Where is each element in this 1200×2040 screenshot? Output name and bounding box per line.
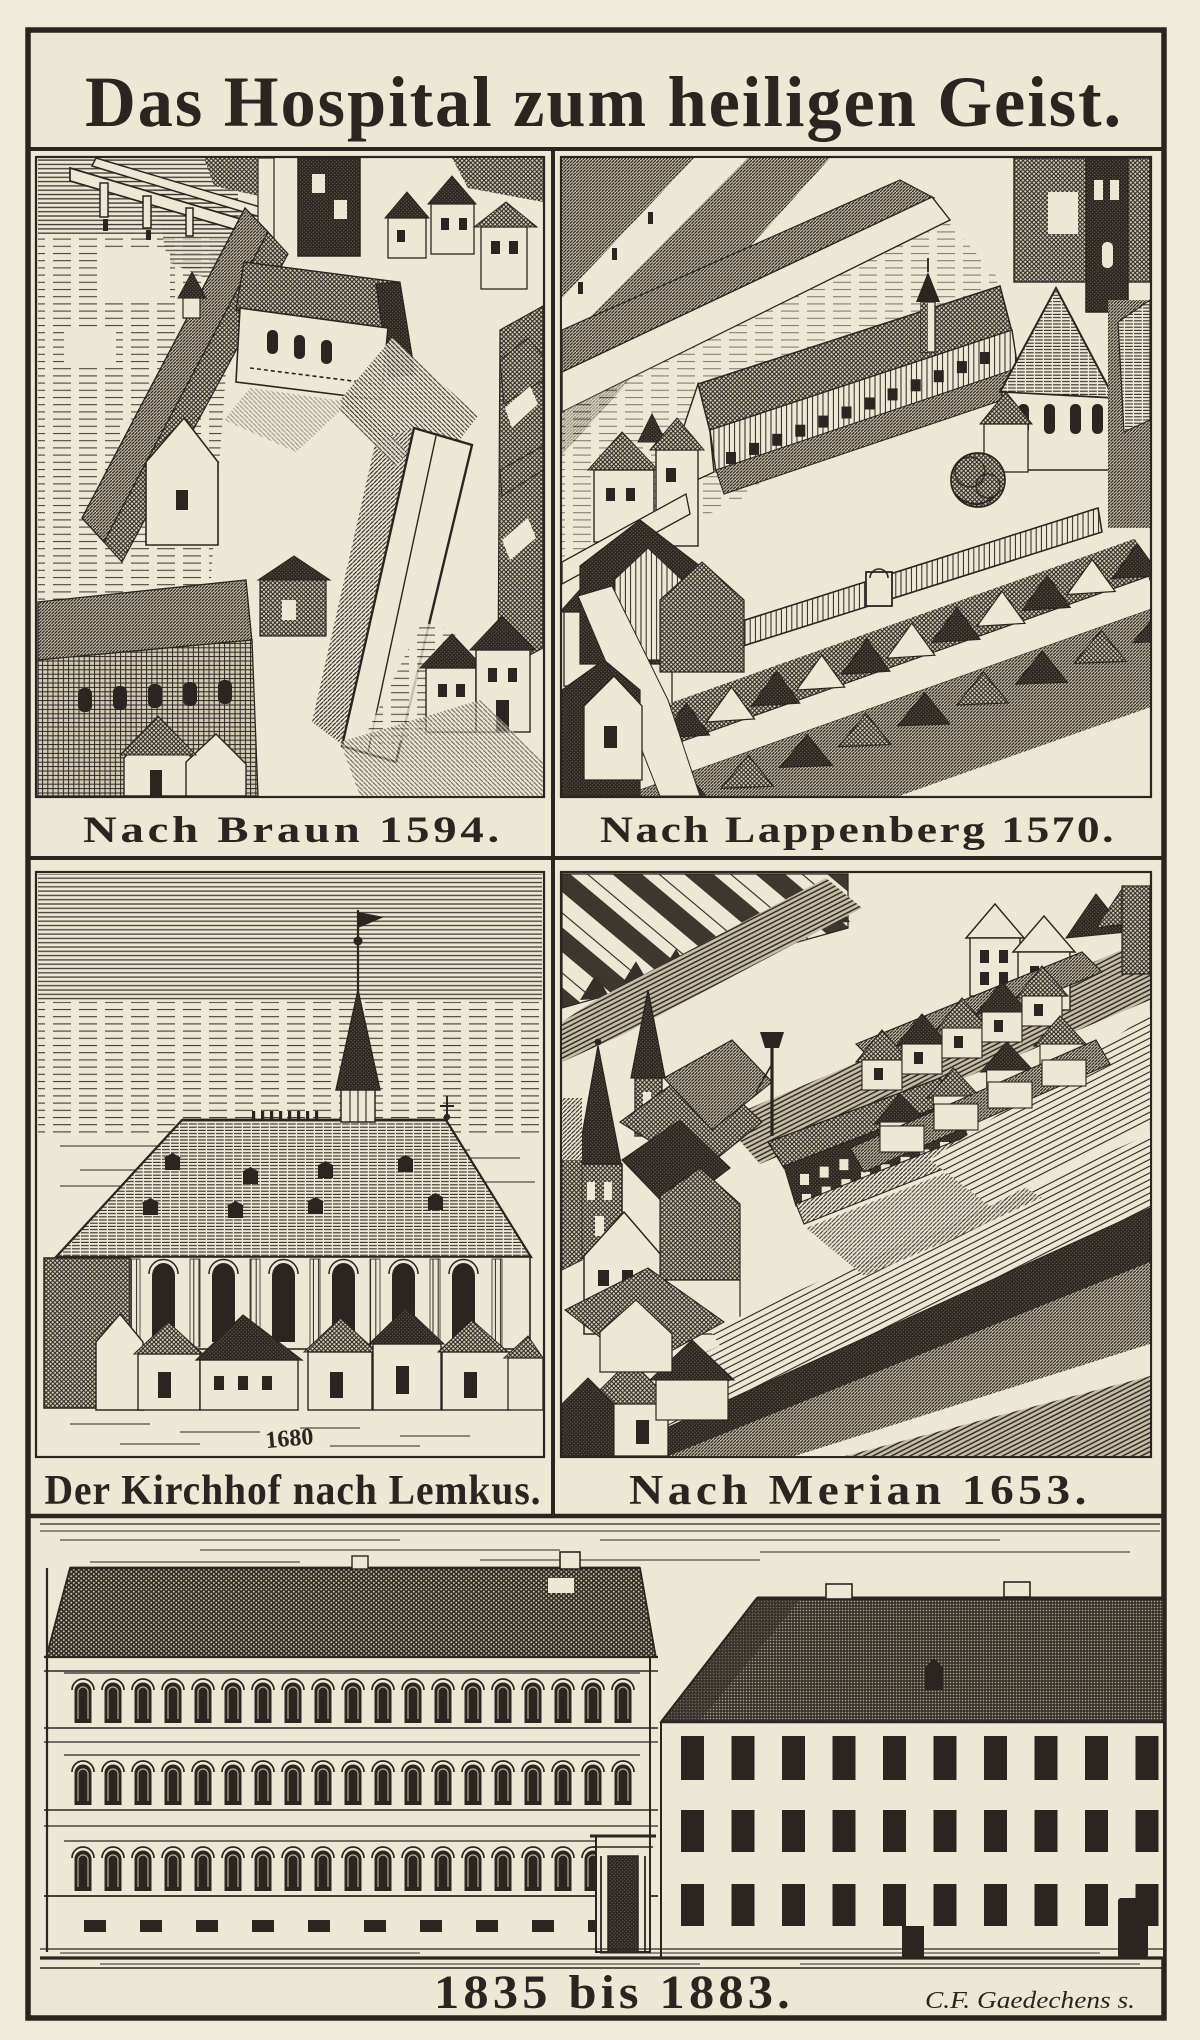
svg-text:Das Hospital zum heiligen Geis: Das Hospital zum heiligen Geist. — [85, 62, 1123, 142]
svg-text:Nach Braun 1594.: Nach Braun 1594. — [83, 810, 503, 851]
svg-text:Nach Merian 1653.: Nach Merian 1653. — [629, 1468, 1091, 1514]
svg-text:Nach Lappenberg 1570.: Nach Lappenberg 1570. — [600, 810, 1116, 851]
svg-text:1835 bis 1883.: 1835 bis 1883. — [434, 1966, 794, 2019]
svg-text:C.F. Gaedechens s.: C.F. Gaedechens s. — [925, 1988, 1135, 2014]
svg-text:Der Kirchhof nach Lemkus.: Der Kirchhof nach Lemkus. — [45, 1468, 542, 1514]
svg-text:1680: 1680 — [264, 1424, 314, 1454]
